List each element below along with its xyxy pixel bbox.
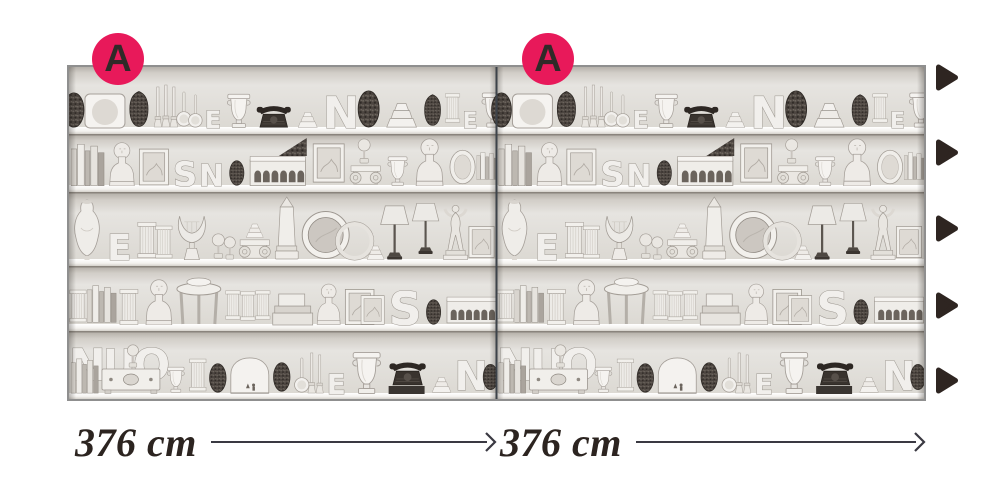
- svg-text:S: S: [173, 155, 197, 195]
- svg-text:N: N: [323, 88, 360, 139]
- panel-divider-line: [496, 67, 498, 399]
- svg-text:S: S: [389, 282, 422, 336]
- repeat-arrow-icon: [935, 366, 959, 395]
- dimension-arrow-icon: [484, 431, 497, 453]
- wallpaper-preview: E N E S N: [67, 65, 926, 401]
- repeat-arrow-icon: [935, 138, 959, 167]
- panel-marker-1: A: [92, 33, 144, 85]
- dimension-arrow-icon: [913, 431, 926, 453]
- repeat-arrow-icon: [935, 291, 959, 320]
- svg-text:E: E: [463, 109, 478, 134]
- svg-text:N: N: [199, 159, 224, 194]
- svg-text:E: E: [327, 368, 346, 399]
- dimension-label: 376 cm: [500, 419, 622, 466]
- product-diagram: E N E S N: [0, 0, 1000, 479]
- dimension-line: [211, 441, 487, 443]
- dimension-label: 376 cm: [75, 419, 197, 466]
- panel-marker-letter: A: [534, 38, 561, 81]
- svg-text:E: E: [107, 228, 132, 269]
- dimension-annotation-1: 376 cm: [67, 420, 497, 464]
- dimension-line: [636, 441, 916, 443]
- repeat-arrow-icon: [935, 214, 959, 243]
- svg-text:E: E: [205, 106, 221, 134]
- wallpaper-pattern-art: E N E S N: [69, 67, 924, 399]
- panel-marker-2: A: [522, 33, 574, 85]
- dimension-annotation-2: 376 cm: [497, 420, 926, 464]
- panel-marker-letter: A: [104, 38, 131, 81]
- repeat-arrow-icon: [935, 63, 959, 92]
